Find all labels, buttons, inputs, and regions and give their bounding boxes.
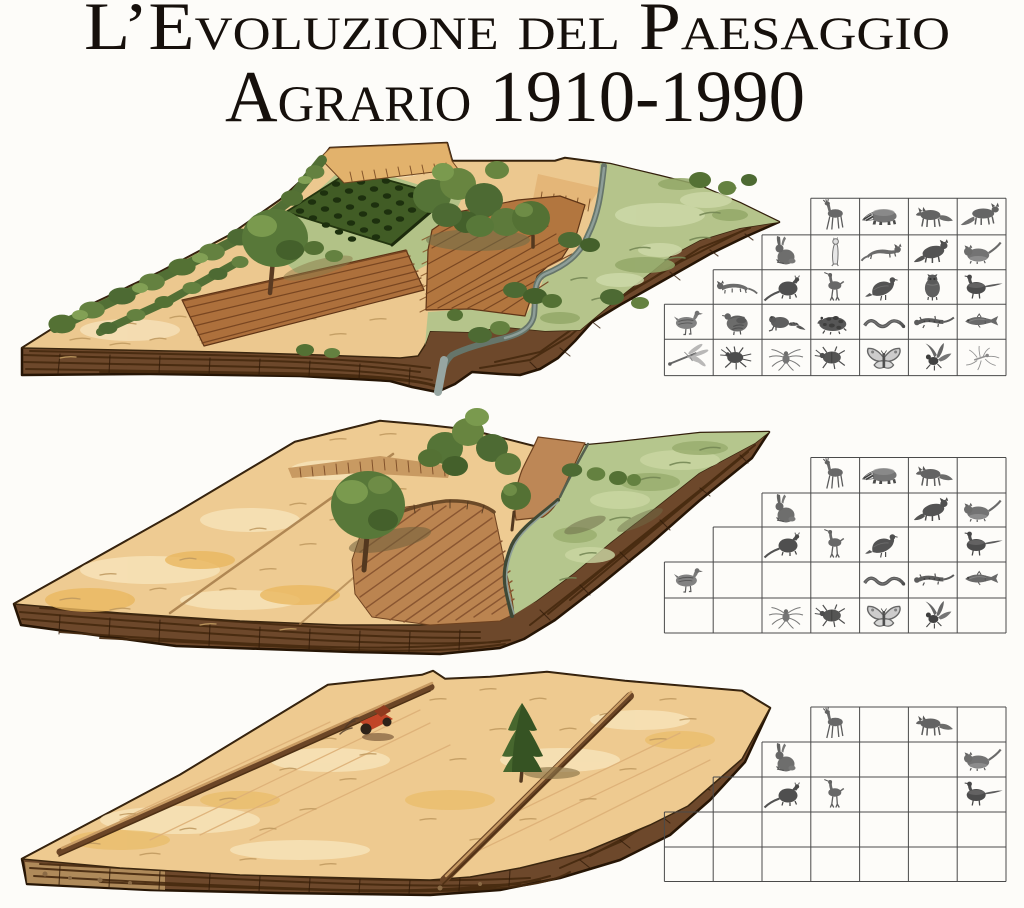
svg-text:Agrario 1910-1990: Agrario 1910-1990 [225, 56, 805, 137]
svg-text:L’Evoluzione del Paesaggio: L’Evoluzione del Paesaggio [84, 0, 950, 64]
